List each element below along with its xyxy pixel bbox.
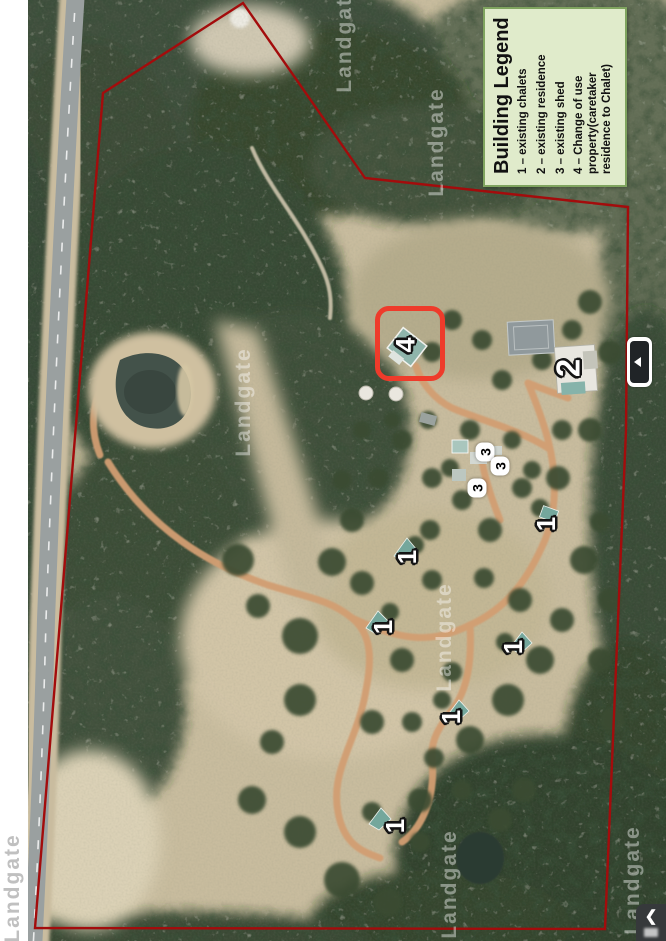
- building-marker-1: 1: [438, 710, 464, 724]
- figure-page: LandgateLandgateLandgateLandgateLandgate…: [0, 0, 666, 941]
- chevron-left-icon: ❮: [645, 909, 658, 924]
- building-marker-1: 1: [394, 550, 420, 564]
- building-marker-4: 4: [393, 337, 420, 352]
- triangle-left-icon: [634, 357, 641, 367]
- tennis-court: [507, 320, 555, 355]
- building-marker-1: 1: [500, 640, 526, 654]
- building-legend: Building Legend 1 – existing chalets2 – …: [483, 7, 627, 187]
- legend-item-4: 4 – Change of use property(caretaker res…: [573, 17, 614, 174]
- building-marker-1: 1: [533, 517, 559, 531]
- legend-item-2: 2 – existing residence: [536, 17, 550, 174]
- building-marker-2: 2: [552, 359, 585, 377]
- illegible-label: [644, 928, 658, 937]
- building-marker-3: 3: [491, 457, 510, 476]
- pond: [456, 832, 504, 884]
- legend-item-1: 1 – existing chalets: [517, 17, 531, 174]
- page-margin: [0, 0, 28, 941]
- building-marker-1: 1: [370, 620, 396, 634]
- legend-items: 1 – existing chalets2 – existing residen…: [517, 17, 615, 174]
- corner-toolbar-tab[interactable]: ❮: [636, 904, 666, 941]
- building-marker-3: 3: [468, 479, 487, 498]
- dam: [88, 332, 216, 448]
- legend-title: Building Legend: [491, 17, 514, 174]
- panel-toggle-tab[interactable]: [627, 337, 652, 387]
- legend-item-3: 3 – existing shed: [555, 17, 569, 174]
- building-marker-1: 1: [382, 819, 408, 833]
- legend-content: Building Legend 1 – existing chalets2 – …: [485, 9, 624, 184]
- panel-toggle-body: [630, 341, 649, 383]
